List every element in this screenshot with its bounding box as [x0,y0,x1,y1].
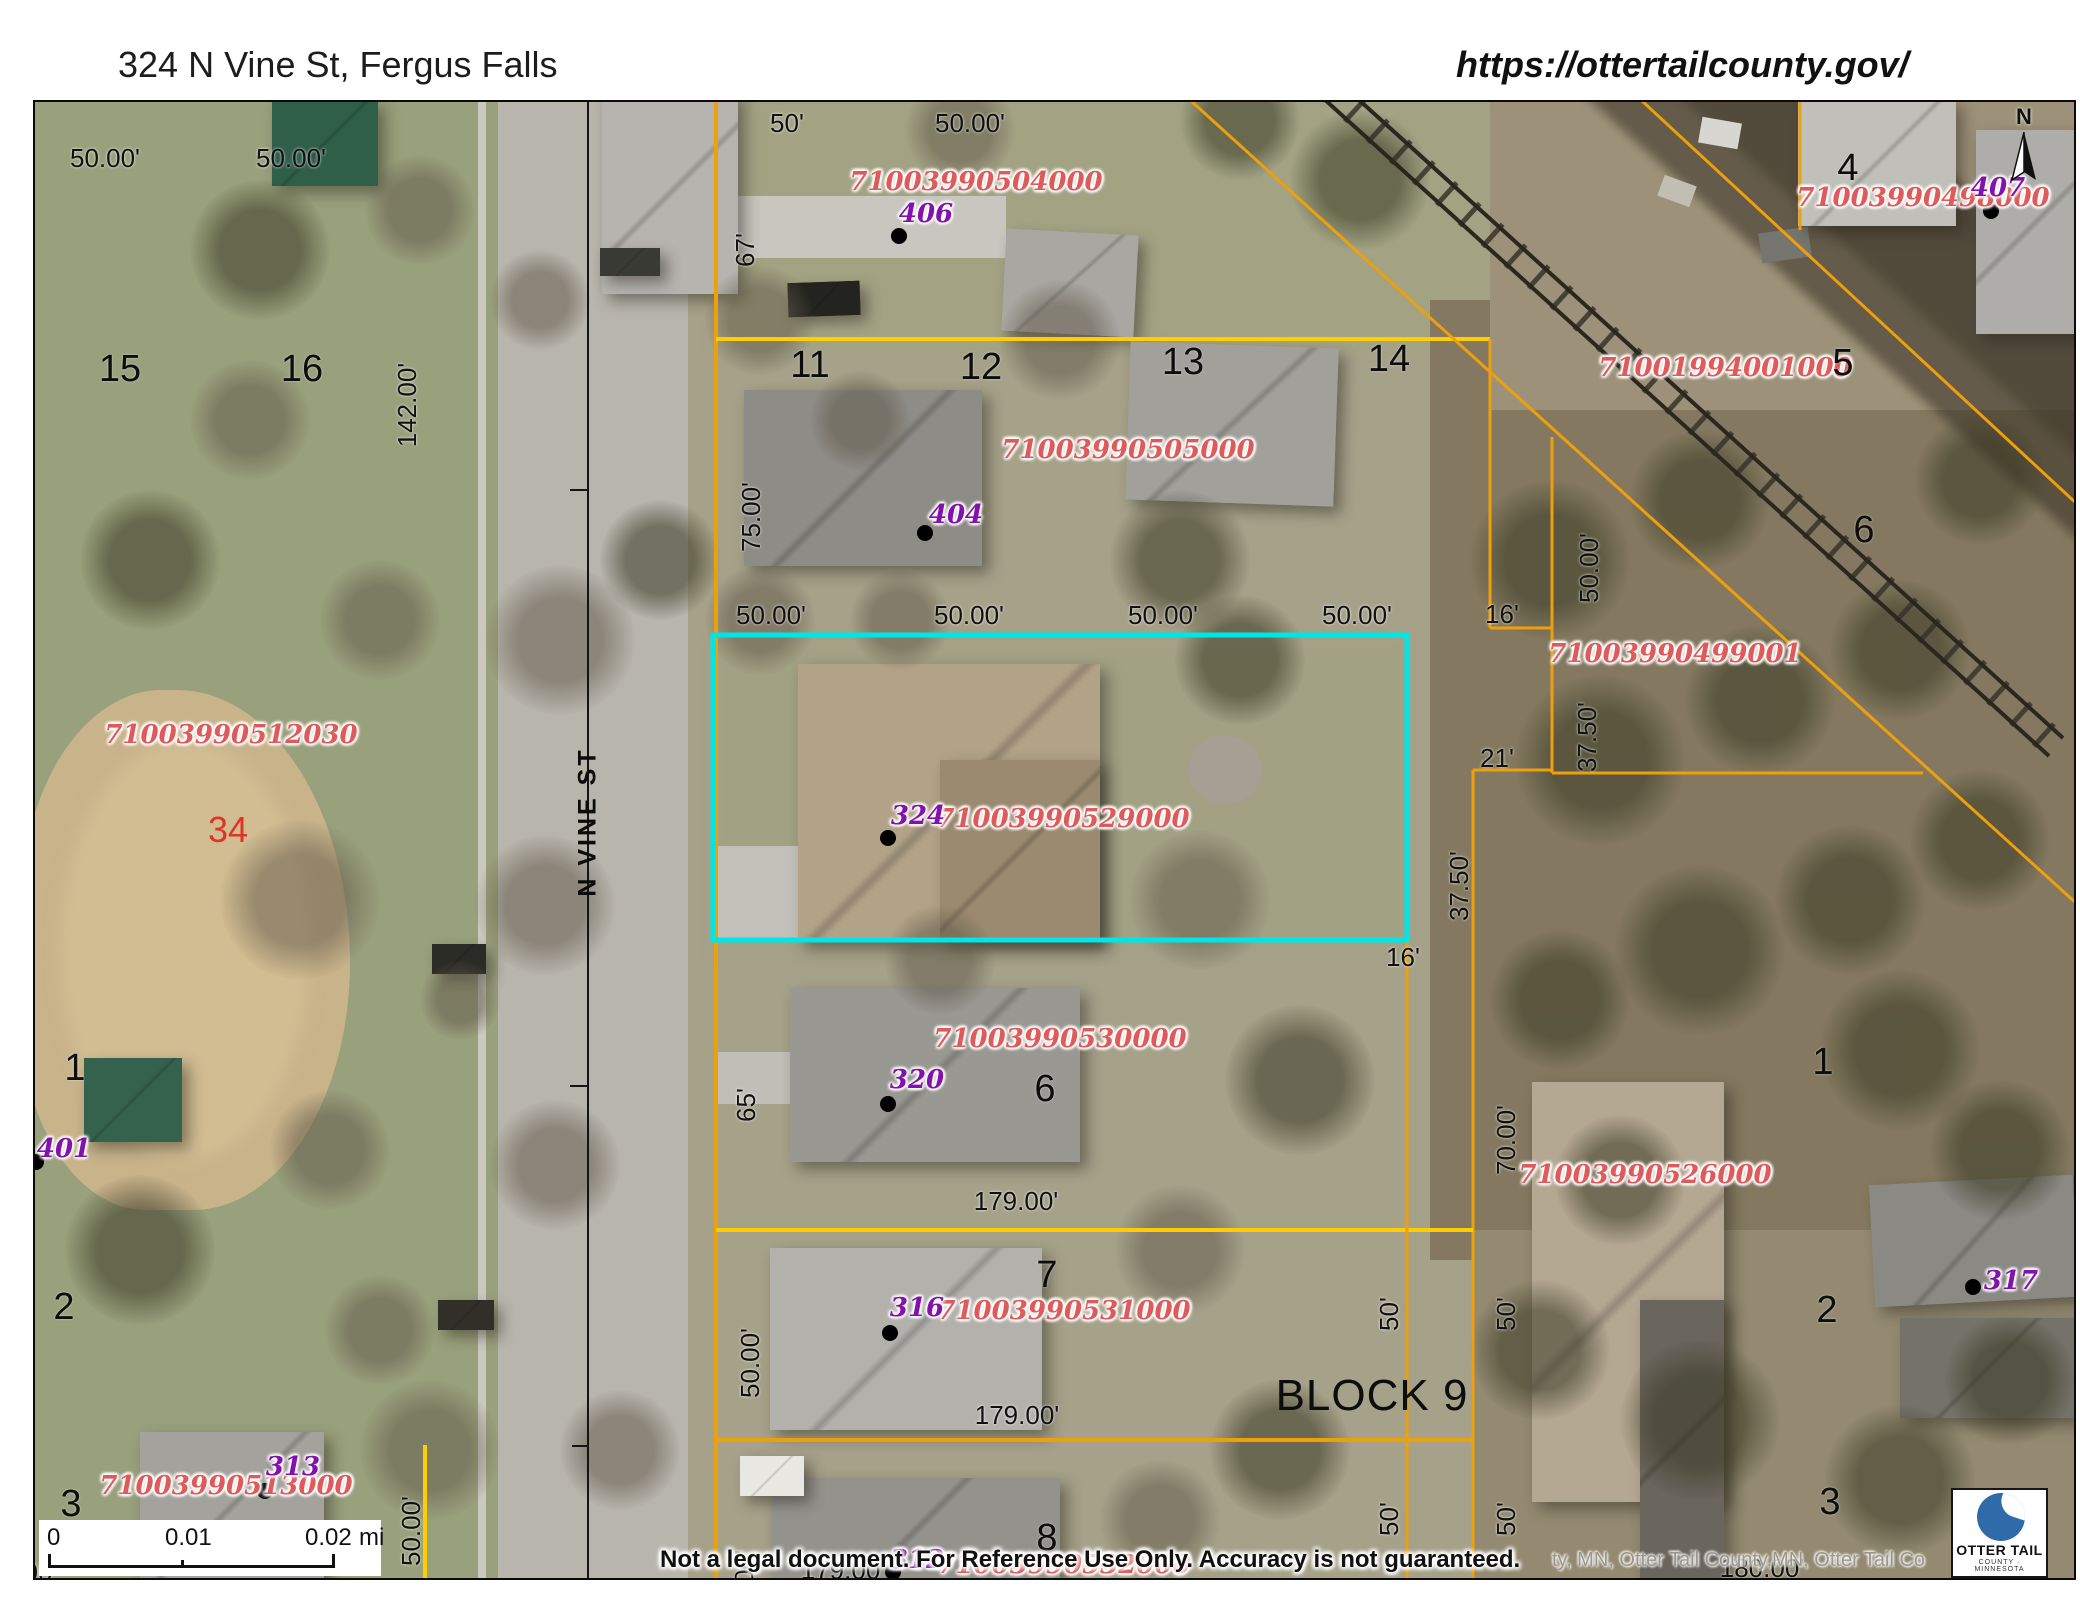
parcel-id-label: 71003990512030 [104,722,357,748]
logo-globe-icon [1977,1493,2025,1541]
dimension-label: 16' [1386,944,1420,970]
north-arrow: N [2002,104,2046,184]
street-name-label: N VINE ST [576,747,601,896]
scale-bar-line [48,1554,335,1568]
map-title: 324 N Vine St, Fergus Falls [118,44,558,86]
lot-number-label: 14 [1368,340,1410,378]
logo-swoosh-icon [1997,1493,2025,1521]
disclaimer-text: Not a legal document. For Reference Use … [660,1546,1520,1574]
lot-number-label: 2 [1816,1291,1837,1329]
lot-number-label: 7 [1036,1256,1057,1294]
lot-number-label: 15 [99,350,141,388]
lot-number-label: 3 [1819,1483,1840,1521]
lot-number-label: 12 [960,348,1002,386]
lot-number-label: 6 [1034,1070,1055,1108]
dimension-label: 50.00' [1576,533,1602,603]
parcel-id-label: 71003990504000 [849,169,1102,195]
scale-end: 0.02 [305,1524,352,1552]
address-label: 324 [891,803,945,829]
dimension-label: 37.50' [1446,851,1472,921]
scale-bar: 0 0.01 0.02 mi [39,1520,381,1576]
address-label: 401 [37,1136,91,1162]
dimension-label: 50' [1493,1297,1519,1331]
dimension-label: 37.50' [1574,702,1600,772]
dimension-label: 50.00' [935,110,1005,136]
map-canvas: 7100399050400071003990505000710039905290… [33,100,2076,1580]
dimension-label: 65' [733,1088,759,1122]
parcel-id-label: 71003990530000 [933,1026,1186,1052]
address-label: 316 [890,1295,944,1321]
lot-number-label: 1 [64,1049,85,1087]
parcel-id-label: 71003990529000 [936,806,1189,832]
lot-number-label: 1 [1812,1043,1833,1081]
dimension-label: 16' [1485,601,1519,627]
source-url: https://ottertailcounty.gov/ [1456,44,1909,86]
dimension-label: 179.00' [975,1402,1060,1428]
dimension-label: 70.00' [1493,1105,1519,1175]
north-arrow-icon [2009,130,2039,184]
lot-number-label: 13 [1162,343,1204,381]
dimension-label: 67' [732,233,758,267]
dimension-label: 50' [1376,1297,1402,1331]
section-number-label: 34 [208,812,248,848]
block-label: BLOCK 9 [1276,1374,1469,1418]
attribution-text: ty, MN, Otter Tail County,MN, Otter Tail… [1552,1549,1925,1572]
dimension-label: 50.00' [737,1328,763,1398]
dimension-label: 50' [1493,1502,1519,1536]
lot-number-label: 2 [53,1288,74,1326]
north-label: N [2002,104,2046,130]
lot-number-label: 6 [1853,511,1874,549]
map-labels: 7100399050400071003990505000710039905290… [33,100,2076,1580]
dimension-label: 50.00' [736,602,806,628]
address-label: 320 [890,1067,944,1093]
dimension-label: 142.00' [394,363,420,448]
scale-unit: mi [359,1524,384,1552]
dimension-label: 50' [770,110,804,136]
lot-number-label: 4 [1837,149,1858,187]
logo-subtext: COUNTY · MINNESOTA [1953,1559,2046,1573]
address-label: 406 [899,201,953,227]
logo-text: OTTER TAIL [1953,1542,2046,1558]
dimension-label: 179.00' [974,1188,1059,1214]
address-label: 404 [929,502,983,528]
scale-mid: 0.01 [165,1524,212,1552]
aerial-map: 7100399050400071003990505000710039905290… [33,100,2076,1580]
dimension-label: 21' [1480,745,1514,771]
lot-number-label: 5 [1832,344,1853,382]
page: 324 N Vine St, Fergus Falls https://otte… [0,0,2080,1607]
parcel-id-label: 71003990531000 [937,1298,1190,1324]
dimension-label: 75.00' [738,482,764,552]
dimension-label: 50.00' [70,145,140,171]
parcel-id-label: 71003990499001 [1548,641,1801,667]
address-label: 313 [266,1454,320,1480]
scale-start: 0 [47,1524,60,1552]
parcel-id-label: 71003990505000 [1001,437,1254,463]
parcel-id-label: 71003990526000 [1518,1162,1771,1188]
lot-number-label: 3 [60,1485,81,1523]
address-label: 317 [1984,1268,2038,1294]
dimension-label: 50.00' [398,1496,424,1566]
dimension-label: 50.00' [934,602,1004,628]
scale-bar-tick [181,1560,184,1568]
dimension-label: 50.00' [1322,602,1392,628]
dimension-label: 50' [1376,1502,1402,1536]
lot-number-label: 16 [281,350,323,388]
dimension-label: 50.00' [1128,602,1198,628]
parcel-id-label: 71001994001000 [1598,355,1851,381]
lot-number-label: 11 [790,346,829,384]
dimension-label: 50.00' [256,145,326,171]
otter-tail-county-logo: OTTER TAIL COUNTY · MINNESOTA [1951,1488,2048,1578]
